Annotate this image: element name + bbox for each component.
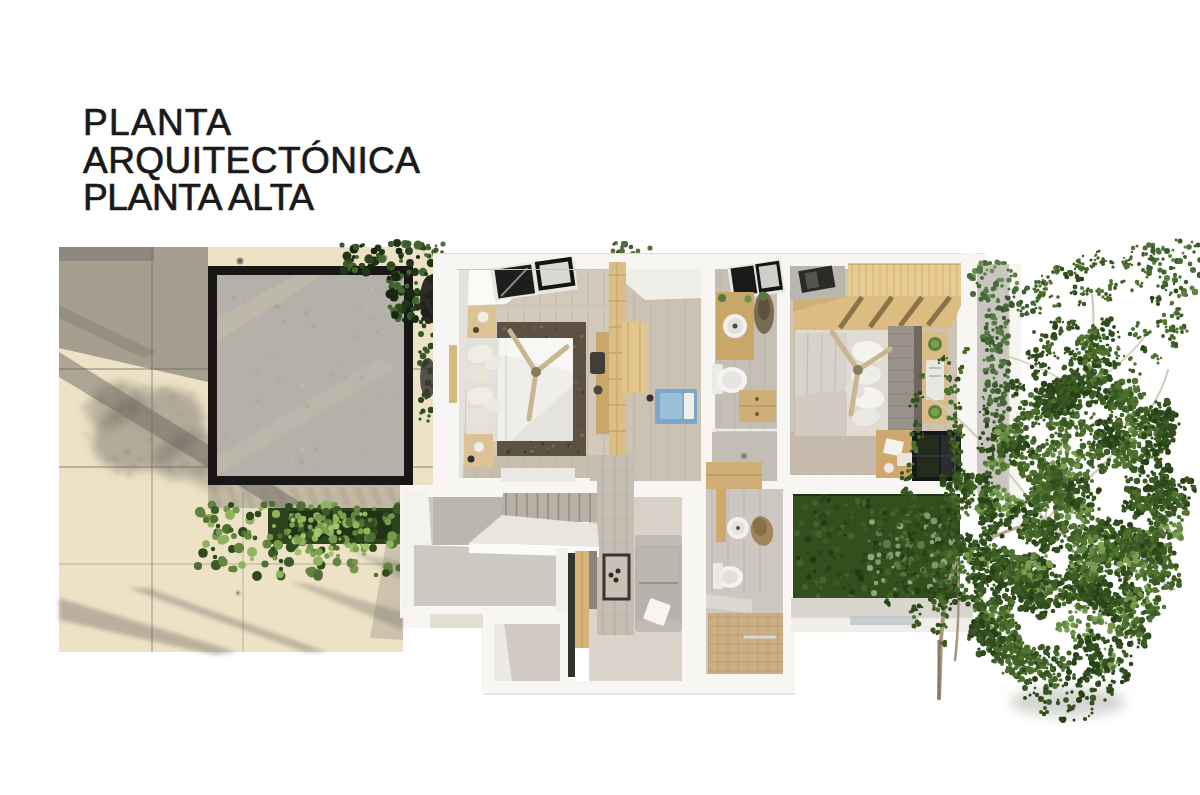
svg-text:PLANTA ALTA: PLANTA ALTA	[83, 177, 314, 218]
svg-text:ARQUITECTÓNICA: ARQUITECTÓNICA	[83, 140, 420, 181]
svg-text:PLANTA: PLANTA	[83, 102, 231, 143]
